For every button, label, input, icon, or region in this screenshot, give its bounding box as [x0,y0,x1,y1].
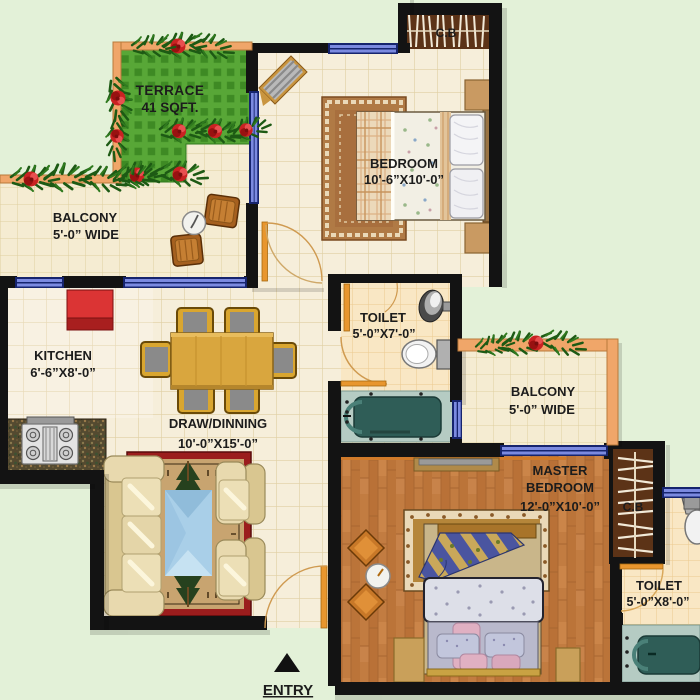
svg-text:C.B: C.B [623,500,644,514]
svg-text:5'-0”X8'-0”: 5'-0”X8'-0” [627,595,690,609]
svg-text:10'-6”X10'-0”: 10'-6”X10'-0” [364,172,444,187]
svg-text:5'-0” WIDE: 5'-0” WIDE [509,402,575,417]
svg-text:BALCONY: BALCONY [53,210,118,225]
svg-text:MASTER: MASTER [533,463,589,478]
svg-text:5'-0” WIDE: 5'-0” WIDE [53,227,119,242]
svg-text:C.B: C.B [436,26,457,40]
svg-text:TERRACE: TERRACE [136,83,205,98]
svg-text:BEDROOM: BEDROOM [370,156,438,171]
svg-text:KITCHEN: KITCHEN [34,348,92,363]
svg-text:10'-0”X15'-0”: 10'-0”X15'-0” [178,436,258,451]
svg-text:DRAW/DINNING: DRAW/DINNING [169,416,267,431]
svg-text:BEDROOM: BEDROOM [526,480,594,495]
svg-text:6'-6”X8'-0”: 6'-6”X8'-0” [30,365,95,380]
svg-text:TOILET: TOILET [360,310,406,325]
svg-text:BALCONY: BALCONY [511,384,576,399]
svg-text:41 SQFT.: 41 SQFT. [141,100,198,115]
svg-text:12'-0”X10'-0”: 12'-0”X10'-0” [520,499,600,514]
svg-text:ENTRY: ENTRY [263,682,313,699]
svg-text:TOILET: TOILET [636,578,682,593]
svg-text:5'-0”X7'-0”: 5'-0”X7'-0” [353,327,416,341]
